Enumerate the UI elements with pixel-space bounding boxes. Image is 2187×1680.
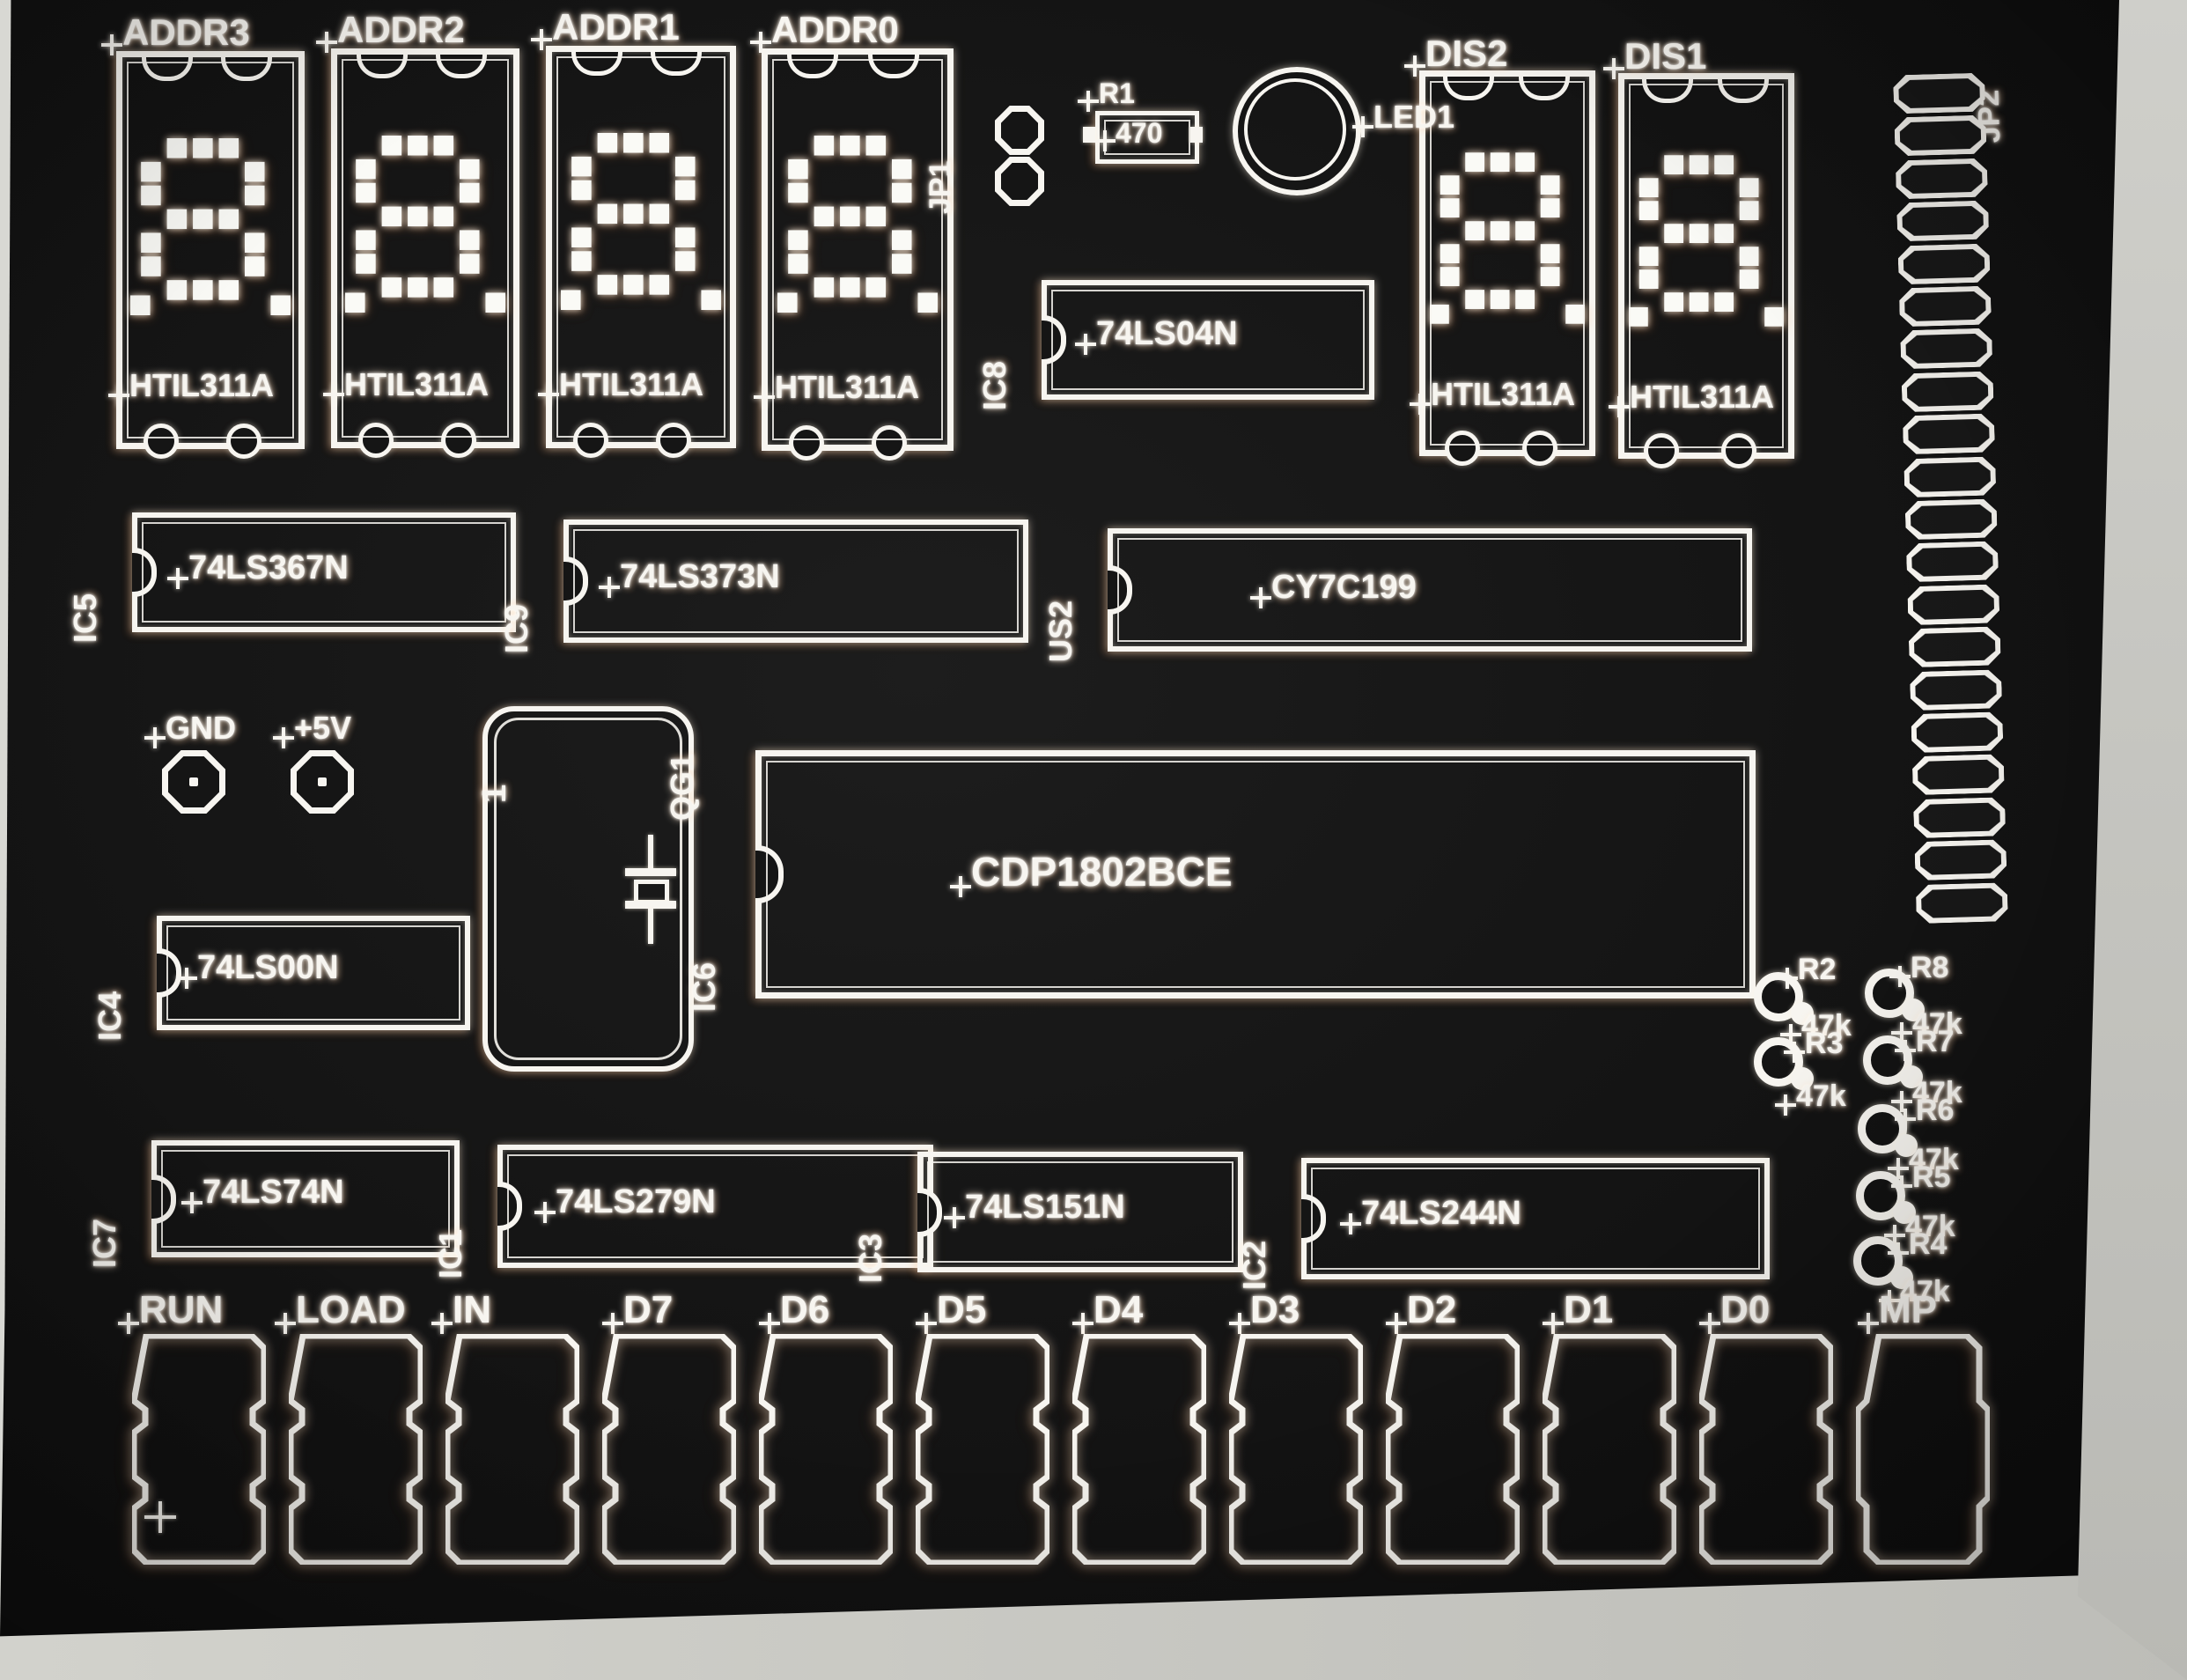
pad (1896, 158, 1988, 200)
switch-d7[interactable]: D7 (602, 1334, 736, 1565)
resistor-ref[interactable]: R8 (1911, 951, 1948, 985)
ic-ref[interactable]: IC5 (67, 593, 104, 643)
display-pad (573, 423, 608, 458)
pin1-notch-icon (497, 1182, 522, 1231)
display-notch-icon (142, 57, 193, 81)
pad-center-dot (189, 777, 198, 786)
pad (1909, 626, 2001, 667)
ic-ref[interactable]: IC8 (976, 361, 1013, 410)
display-notch-icon (1443, 77, 1494, 100)
display-notch-icon (1718, 79, 1769, 103)
display-part-number[interactable]: HTIL311A (344, 366, 489, 403)
display-part-number[interactable]: HTIL311A (775, 369, 919, 406)
pad-center-dot (318, 777, 327, 786)
pad (1893, 73, 1985, 114)
ic-ic5[interactable]: IC5 74LS367N (132, 512, 516, 632)
display-pad (226, 424, 261, 459)
jumper-ref[interactable]: JP1 (924, 161, 958, 215)
display-pad (872, 425, 907, 461)
ic-ref[interactable]: IC6 (686, 962, 723, 1012)
ic-value[interactable]: 74LS367N (188, 549, 349, 587)
ic-value[interactable]: 74LS279N (556, 1183, 716, 1221)
pad (1903, 413, 1995, 454)
display-addr0[interactable]: ADDR0 HTIL311A (762, 48, 954, 451)
crystal-pin1: 1 (476, 785, 514, 803)
display-part-number[interactable]: HTIL311A (559, 366, 703, 403)
display-notch-icon (1519, 77, 1570, 100)
pad (1901, 371, 1993, 412)
ic-value[interactable]: 74LS74N (202, 1174, 344, 1212)
switch-outline (759, 1334, 893, 1565)
switch-d0[interactable]: D0 (1699, 1334, 1833, 1565)
pad (162, 750, 225, 814)
crystal-symbol-icon (625, 901, 676, 909)
switch-outline (1699, 1334, 1833, 1565)
display-notch-icon (357, 55, 408, 78)
display-pad (144, 424, 179, 459)
ic-value[interactable]: 74LS151N (965, 1189, 1125, 1227)
pad (1916, 882, 2008, 924)
ic-ic9[interactable]: IC9 74LS373N (563, 519, 1028, 643)
switch-load[interactable]: LOAD (289, 1334, 423, 1565)
ic-ref[interactable]: IC2 (1236, 1241, 1273, 1290)
resistor-ref[interactable]: R2 (1798, 953, 1836, 987)
pad (995, 157, 1044, 206)
display-ref[interactable]: DIS2 (1425, 33, 1507, 75)
display-pad (1644, 433, 1679, 468)
switch-d4[interactable]: D4 (1072, 1334, 1206, 1565)
ic-ref[interactable]: IC9 (498, 604, 535, 653)
display-addr3[interactable]: ADDR3 HTIL311A (116, 51, 305, 449)
switch-label[interactable]: D7 (623, 1288, 673, 1332)
crystal-qg1[interactable]: 1 QG1 (482, 706, 773, 1076)
crystal-symbol-icon (648, 835, 653, 870)
switch-outline (132, 1334, 266, 1565)
display-notch-icon (436, 55, 487, 78)
pad (1913, 797, 2006, 838)
dot-matrix-8-icon (130, 138, 291, 315)
pad (1912, 754, 2005, 795)
switch-label[interactable]: D5 (937, 1288, 986, 1332)
display-pad (656, 423, 691, 458)
pin1-notch-icon (563, 556, 588, 606)
switch-label[interactable]: MP (1879, 1288, 1937, 1332)
ic-value[interactable]: 74LS04N (1096, 315, 1238, 353)
display-notch-icon (221, 57, 272, 81)
pad (1894, 115, 1986, 157)
display-pad (1445, 431, 1480, 466)
resistor-ref[interactable]: R7 (1916, 1025, 1954, 1059)
display-pad (441, 423, 476, 458)
resistor-ref[interactable]: R6 (1916, 1094, 1954, 1128)
ic-ic4[interactable]: IC4 74LS00N (157, 916, 470, 1030)
pin1-notch-icon (1301, 1194, 1326, 1243)
jumper-jp2[interactable]: JP2 (1893, 70, 2094, 955)
switch-outline (916, 1334, 1049, 1565)
ic-ref[interactable]: US2 (1042, 601, 1079, 662)
ic-ref[interactable]: IC7 (86, 1219, 123, 1268)
led-ref[interactable]: LED1 (1373, 99, 1454, 136)
display-notch-icon (1642, 79, 1693, 103)
ic-value[interactable]: 74LS00N (197, 949, 339, 987)
pin1-notch-icon (1108, 565, 1132, 615)
ic-value[interactable]: CDP1802BCE (971, 848, 1233, 895)
switch-outline (289, 1334, 423, 1565)
switch-d3[interactable]: D3 (1229, 1334, 1363, 1565)
pcb-editor-screenshot: ADDR3 HTIL311A ADDR2 HTIL311A ADDR1 HTIL… (0, 0, 2187, 1680)
pad (1906, 541, 1999, 582)
resistor-value[interactable]: 47k (1796, 1079, 1846, 1114)
switch-label[interactable]: RUN (139, 1288, 223, 1332)
dot-matrix-8-icon (561, 133, 721, 310)
display-notch-icon (787, 55, 838, 78)
display-part-number[interactable]: HTIL311A (129, 367, 274, 404)
display-addr2[interactable]: ADDR2 HTIL311A (331, 48, 519, 448)
ic-ic8[interactable]: IC8 74LS04N (1042, 280, 1374, 400)
display-notch-icon (571, 52, 622, 76)
pad (1914, 839, 2007, 881)
display-ref[interactable]: DIS1 (1624, 35, 1706, 77)
resistor-r1[interactable]: R1 470 (1085, 81, 1208, 166)
display-pad (789, 425, 824, 461)
switch-label[interactable]: D1 (1564, 1288, 1613, 1332)
pad (1899, 285, 1992, 327)
ic-ref[interactable]: IC4 (92, 991, 129, 1041)
switch-label[interactable]: D0 (1720, 1288, 1770, 1332)
testpoint-gnd[interactable]: GND (155, 710, 252, 820)
dot-matrix-8-icon (1629, 155, 1784, 327)
led-led1[interactable]: LED1 (1233, 67, 1426, 201)
display-notch-icon (868, 55, 919, 78)
display-pad (1721, 433, 1756, 468)
switch-label[interactable]: D6 (780, 1288, 829, 1332)
switch-outline (1229, 1334, 1363, 1565)
resistor-ref[interactable]: R1 (1099, 77, 1135, 110)
ic-value[interactable]: 74LS373N (620, 558, 780, 596)
switch-d6[interactable]: D6 (759, 1334, 893, 1565)
dot-matrix-8-icon (777, 136, 938, 313)
resistor-ref[interactable]: R4 (1909, 1227, 1947, 1262)
display-pad (358, 423, 394, 458)
ic-ic6-cpu[interactable]: IC6 CDP1802BCE (755, 750, 1756, 998)
pad (995, 106, 1044, 155)
display-ref[interactable]: ADDR0 (771, 9, 899, 51)
resistor-body: 470 (1095, 111, 1199, 164)
switch-d5[interactable]: D5 (916, 1334, 1049, 1565)
display-part-number[interactable]: HTIL311A (1431, 376, 1575, 413)
pin1-notch-icon (917, 1188, 942, 1237)
switch-label[interactable]: IN (453, 1288, 491, 1332)
dot-matrix-8-icon (345, 136, 505, 313)
switch-in[interactable]: IN (445, 1334, 579, 1565)
ic-ref[interactable]: IC3 (852, 1234, 889, 1283)
display-ref[interactable]: ADDR2 (337, 9, 465, 51)
crystal-symbol-icon (625, 868, 676, 876)
display-addr1[interactable]: ADDR1 HTIL311A (546, 46, 736, 448)
resistor-lead (1083, 127, 1095, 143)
switch-d1[interactable]: D1 (1543, 1334, 1676, 1565)
ic-ic2[interactable]: IC2 74LS244N (1301, 1158, 1770, 1279)
switch-mp[interactable]: MP (1856, 1334, 1990, 1565)
display-pad (1522, 431, 1557, 466)
switch-outline (445, 1334, 579, 1565)
pad (1897, 243, 1990, 284)
switch-outline (1543, 1334, 1676, 1565)
switch-outline (602, 1334, 736, 1565)
pad (1910, 669, 2002, 711)
ic-ref[interactable]: IC1 (432, 1229, 469, 1278)
switch-outline (1856, 1334, 1990, 1565)
display-notch-icon (651, 52, 702, 76)
display-ref[interactable]: ADDR1 (552, 6, 680, 48)
switch-label[interactable]: D3 (1250, 1288, 1300, 1332)
display-part-number[interactable]: HTIL311A (1630, 379, 1774, 416)
switch-outline (1386, 1334, 1520, 1565)
pad (1907, 584, 1999, 625)
pad (1911, 711, 2003, 753)
switch-outline (1072, 1334, 1206, 1565)
testpoint-5v[interactable]: +5V (283, 710, 380, 820)
testpoint-label[interactable]: +5V (294, 710, 351, 747)
display-dis1[interactable]: DIS1 HTIL311A (1618, 73, 1794, 459)
ic-ic7[interactable]: IC7 74LS74N (151, 1140, 460, 1257)
anchor-cross-icon (158, 1501, 162, 1533)
pin1-notch-icon (132, 548, 157, 597)
dot-matrix-8-icon (1430, 152, 1585, 324)
resistor-ref[interactable]: R3 (1805, 1027, 1843, 1061)
resistor-ref[interactable]: R5 (1912, 1161, 1950, 1195)
pad (1900, 328, 1992, 369)
display-ref[interactable]: ADDR3 (122, 11, 250, 54)
led-ring-inner (1244, 78, 1346, 181)
ic-ic3[interactable]: IC3 74LS151N (917, 1152, 1243, 1272)
pin1-notch-icon (157, 948, 181, 998)
pin1-notch-icon (755, 845, 784, 903)
resistor-lead (1190, 127, 1203, 143)
crystal-symbol-icon (648, 909, 653, 944)
switch-label[interactable]: LOAD (296, 1288, 406, 1332)
pin1-notch-icon (151, 1175, 176, 1224)
ic-value[interactable]: 74LS244N (1361, 1195, 1521, 1233)
jumper-jp1[interactable]: JP1 (956, 104, 1062, 214)
pad (1903, 456, 1996, 497)
crystal-ref[interactable]: QG1 (664, 754, 701, 821)
testpoint-label[interactable]: GND (166, 710, 236, 747)
ic-value[interactable]: CY7C199 (1271, 569, 1417, 607)
switch-label[interactable]: D2 (1407, 1288, 1456, 1332)
pad (291, 750, 354, 814)
switch-label[interactable]: D4 (1093, 1288, 1143, 1332)
pad (1896, 200, 1989, 241)
switch-run[interactable]: RUN (132, 1334, 266, 1565)
pad (1905, 498, 1998, 540)
resistor-value[interactable]: 470 (1116, 117, 1162, 150)
ic-us2[interactable]: US2 CY7C199 (1108, 528, 1752, 652)
pin1-notch-icon (1042, 315, 1066, 365)
switch-d2[interactable]: D2 (1386, 1334, 1520, 1565)
